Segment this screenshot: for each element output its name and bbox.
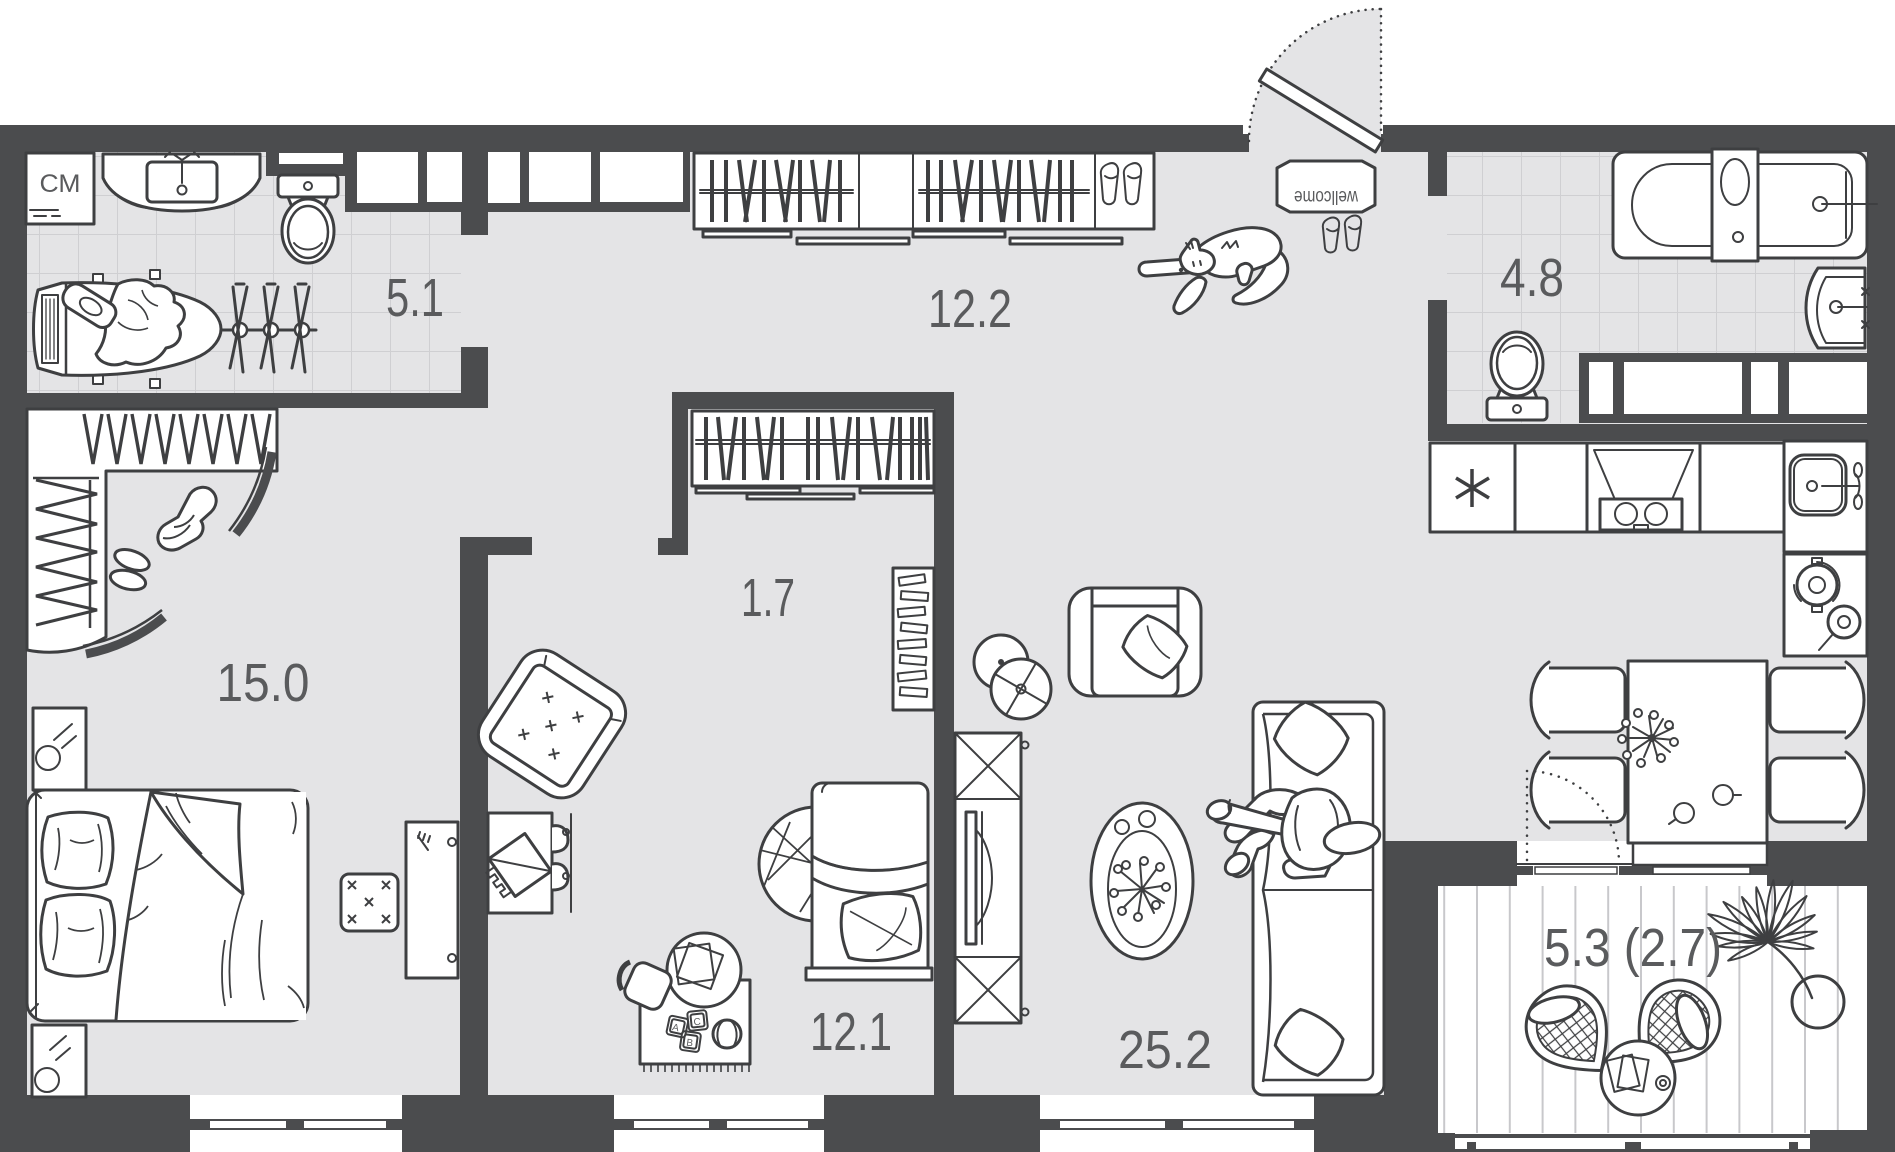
svg-text:12.1: 12.1 [810, 1002, 892, 1062]
svg-text:wellcome: wellcome [1294, 186, 1359, 207]
svg-text:4.8: 4.8 [1500, 248, 1564, 308]
svg-text:15.0: 15.0 [217, 653, 310, 713]
svg-text:12.2: 12.2 [928, 279, 1012, 339]
svg-text:C: C [693, 1017, 701, 1029]
svg-text:1.7: 1.7 [741, 568, 795, 628]
svg-text:25.2: 25.2 [1118, 1020, 1212, 1080]
svg-text:5.1: 5.1 [386, 268, 444, 328]
svg-text:5.3 (2.7): 5.3 (2.7) [1544, 918, 1722, 978]
svg-text:СМ: СМ [40, 170, 81, 198]
